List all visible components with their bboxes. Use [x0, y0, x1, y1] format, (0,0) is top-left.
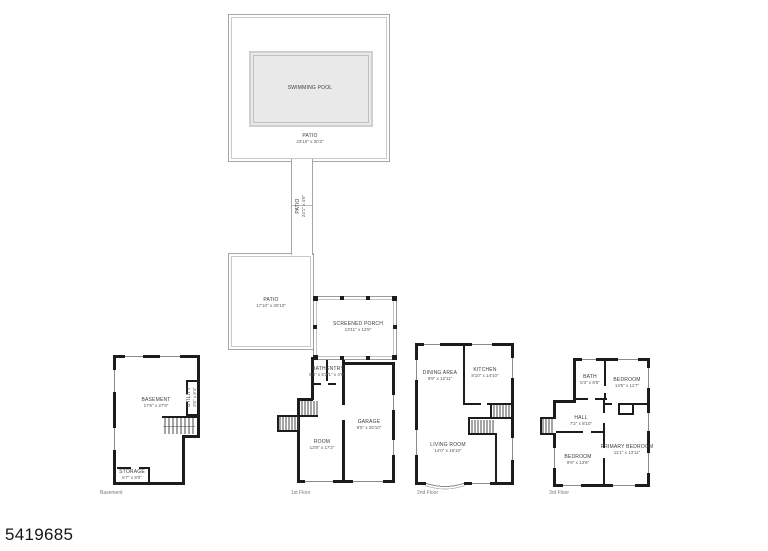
- bath-room-label: BATH 5'3" x 8'5": [580, 374, 600, 386]
- storage-room-label: STORAGE 6'7" x 9'0": [119, 469, 145, 481]
- living-room-label: LIVING ROOM 14'0" x 16'10": [430, 442, 466, 454]
- second-floor-caption: 2nd Floor: [417, 490, 438, 496]
- pool-patio-label: PATIO 23'10" x 30'3": [296, 133, 323, 145]
- porch-post: [313, 355, 318, 360]
- screened-porch-label: SCREENED PORCH 13'11" x 12'8": [333, 321, 383, 333]
- kitchen-label: KITCHEN 8'10" x 14'10": [471, 367, 498, 379]
- basement-plan: BASEMENT 17'6" x 27'9" UTILITY 3'6" x 8'…: [110, 350, 205, 490]
- porch-post: [313, 325, 317, 329]
- porch-post: [392, 296, 397, 301]
- porch-post: [392, 355, 397, 360]
- basement-room-label: BASEMENT 17'6" x 27'9": [141, 397, 170, 409]
- porch-post: [340, 296, 344, 300]
- bedroom-top-label: BEDROOM 14'5" x 11'7": [613, 377, 640, 389]
- photo-id: 5419685: [5, 525, 73, 545]
- porch-post: [313, 296, 318, 301]
- porch-post: [366, 296, 370, 300]
- floor-plan-sheet: SWIMMING POOL PATIO 23'10" x 30'3" PATIO…: [0, 0, 768, 551]
- first-floor-caption: 1st Floor: [291, 490, 310, 496]
- porch-post: [366, 356, 370, 360]
- primary-bedroom-label: PRIMARY BEDROOM 11'1" x 13'11": [601, 444, 654, 456]
- entry-room-label: ENTRY 7'1" x 4'9": [325, 366, 345, 378]
- hall-label: HALL 7'2" x 8'10": [570, 415, 592, 427]
- swimming-pool-label: SWIMMING POOL: [288, 85, 333, 91]
- third-floor-plan: BATH 5'3" x 8'5" BEDROOM 14'5" x 11'7" H…: [538, 353, 653, 490]
- garage-room-label: GARAGE 9'5" x 25'10": [357, 419, 382, 431]
- lower-patio-area: PATIO 17'10" x 20'10": [228, 253, 314, 350]
- first-floor-plan: BATH 5'0" x 5'2" ENTRY 7'1" x 4'9" ROOM …: [268, 355, 400, 490]
- basement-caption: Basement: [100, 490, 123, 496]
- walkway-patio-label: PATIO 24'1" x 4'6": [295, 195, 307, 217]
- pool-patio-area: SWIMMING POOL PATIO 23'10" x 30'3": [228, 14, 390, 162]
- second-floor-walls: [412, 340, 516, 490]
- dining-area-label: DINING AREA 9'9" x 12'11": [423, 370, 457, 382]
- utility-room-label: UTILITY 3'6" x 8'4": [186, 387, 198, 407]
- third-floor-caption: 3rd Floor: [549, 490, 569, 496]
- lower-patio-label: PATIO 17'10" x 20'10": [256, 297, 286, 309]
- porch-post: [340, 356, 344, 360]
- room-label: ROOM 13'8" x 17'2": [310, 439, 335, 451]
- screened-porch-area: SCREENED PORCH 13'11" x 12'8": [313, 296, 397, 360]
- porch-post: [393, 325, 397, 329]
- second-floor-plan: DINING AREA 9'9" x 12'11" KITCHEN 8'10" …: [412, 340, 516, 490]
- bedroom-left-label: BEDROOM 9'9" x 13'6": [564, 454, 591, 466]
